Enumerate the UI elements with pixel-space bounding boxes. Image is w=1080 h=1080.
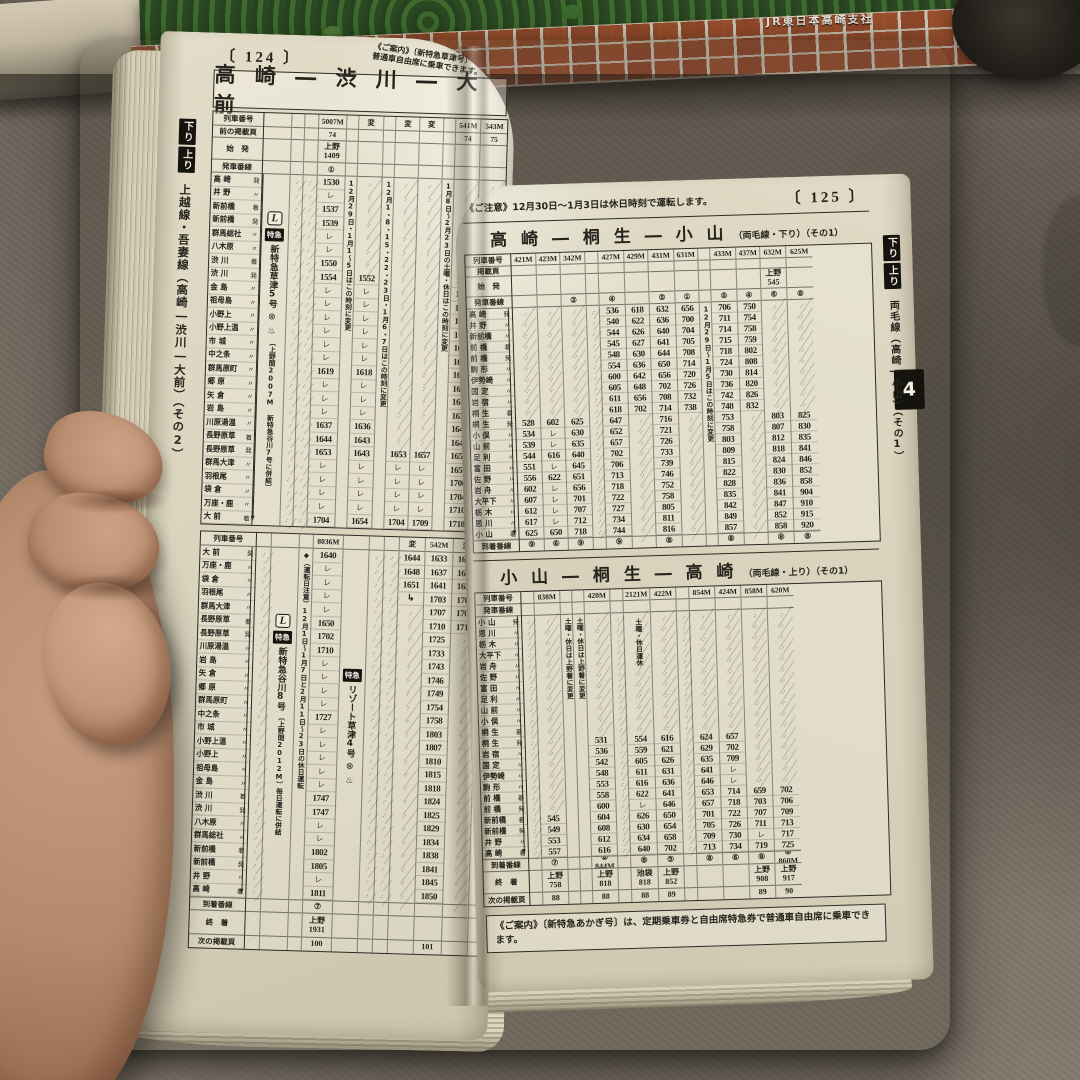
time-cell: 657	[604, 437, 629, 449]
title-main: 小 山 ― 桐 生 ― 高 崎	[500, 557, 738, 589]
row-label: 次の掲載頁	[484, 892, 529, 906]
time-cell: 548	[589, 767, 614, 779]
time-cell: 622	[543, 472, 566, 484]
time-cell: 1651	[398, 578, 423, 592]
time-cell: 1747	[306, 805, 335, 819]
time-cell: 1654	[347, 514, 372, 528]
pass-mark: レ	[309, 459, 336, 473]
pass-mark: レ	[409, 503, 432, 517]
time-cell: 641	[651, 336, 676, 348]
time-cell: 808	[739, 356, 762, 368]
time-cell: 721	[653, 424, 678, 436]
time-cell: 835	[717, 489, 742, 501]
arrival-platform-cell: ⑦	[303, 900, 332, 914]
pass-mark: レ	[307, 751, 336, 765]
time-cell: 1815	[419, 768, 446, 782]
head-cell	[346, 129, 357, 141]
arrival-platform-cell	[568, 857, 579, 869]
up-direction-badge: 上り	[177, 146, 195, 172]
page-ref-cell	[569, 891, 580, 904]
time-cell: 549	[541, 824, 566, 836]
time-cell: 626	[626, 326, 649, 338]
time-cell: 830	[767, 465, 792, 477]
train-number-cell: 625M	[786, 245, 812, 258]
pass-mark: レ	[543, 483, 566, 495]
photo-scene: JR東日本高崎支社 〔 124 〕 《ご案内》〔新特急草津号〕 普通車自由席に乗…	[0, 0, 1080, 1080]
time-cell: 758	[715, 423, 740, 435]
time-cell: 553	[590, 778, 615, 790]
time-cell: 732	[678, 391, 701, 403]
head-cell	[291, 128, 304, 140]
terminal-cell: 上野 917	[775, 862, 802, 885]
time-cell: 1803	[420, 727, 447, 741]
head-cell	[291, 140, 304, 162]
time-cell: 1550	[315, 257, 342, 271]
train-name: リゾート草津4号	[343, 684, 358, 757]
arrival-platform-cell	[415, 903, 442, 917]
pass-mark: レ	[386, 475, 409, 489]
left-page: 〔 124 〕 《ご案内》〔新特急草津号〕 普通車自由席に乗車できます。 高 崎…	[131, 31, 517, 1041]
time-cell: 722	[722, 808, 747, 820]
time-cell: 618	[626, 304, 649, 316]
time-cell: 656	[652, 369, 677, 381]
pass-mark: レ	[348, 474, 373, 488]
time-cell: 622	[626, 315, 649, 327]
pass-mark: レ	[721, 775, 746, 787]
time-cell: 730	[714, 368, 739, 380]
train-number-cell: 変	[359, 116, 384, 131]
time-cell: 717	[774, 828, 800, 840]
time-cell: 718	[721, 797, 746, 809]
departure-platform-cell: ⑤	[649, 291, 674, 304]
time-cell: 709	[774, 806, 800, 818]
train-number-cell: 542M	[426, 538, 453, 553]
limited-express-L-icon: L	[267, 212, 282, 226]
page-ref-cell	[442, 941, 467, 956]
departure-platform-cell	[561, 603, 572, 615]
pass-mark: レ	[313, 338, 340, 352]
head-cell	[537, 275, 561, 296]
time-cell: 734	[723, 841, 748, 853]
time-cell: 622	[629, 788, 655, 800]
pass-mark: レ	[316, 243, 343, 257]
time-cell: 847	[768, 498, 793, 510]
time-cell: 711	[712, 313, 737, 325]
page-ref-cell	[724, 886, 749, 900]
arrival-platform-cell: ⑤	[658, 853, 683, 866]
time-cell: 642	[628, 370, 651, 382]
time-cell: 548	[601, 349, 626, 361]
time-cell: 558	[590, 789, 615, 801]
train-number-cell: 変	[396, 117, 419, 132]
arrival-platform-cell: ⑨	[569, 537, 593, 550]
time-cell: 1643	[349, 447, 374, 461]
time-cell: 650	[544, 527, 567, 539]
page-ref-cell	[332, 937, 357, 952]
terminal-cell	[442, 917, 468, 942]
terminal-cell	[697, 864, 723, 887]
pass-mark: レ	[351, 379, 376, 393]
head-cell	[455, 145, 480, 168]
page-number-right: 〔 125 〕	[785, 185, 867, 208]
time-cell: 634	[630, 832, 656, 844]
time-cell: 1537	[317, 203, 344, 217]
time-cell: 1733	[422, 646, 449, 660]
pass-mark: レ	[317, 189, 344, 203]
time-cell: 736	[714, 379, 739, 391]
time-cell: 600	[602, 371, 627, 383]
pass-mark: レ	[314, 284, 341, 298]
time-cell: 640	[650, 325, 675, 337]
time-cell: 849	[718, 511, 743, 523]
time-cell: 557	[542, 846, 567, 858]
express-badge: 特急	[265, 229, 284, 243]
train-number-cell	[610, 589, 622, 601]
timetable-up: 列車番号大 前発万座・鹿〃袋 倉〃羽根尾〃群馬大津〃長野原草着長野原草発川原湯温…	[188, 530, 496, 957]
train-number-cell	[384, 117, 395, 131]
page-ref-cell: 88	[543, 891, 568, 905]
time-cell: 559	[628, 744, 654, 756]
row-label: 次の掲載頁	[189, 933, 244, 949]
time-cell: 802	[739, 345, 762, 357]
time-cell: 658	[657, 831, 682, 843]
pass-mark: レ	[352, 339, 377, 353]
time-cell: 818	[766, 443, 791, 455]
departure-platform-cell: ①	[318, 163, 345, 177]
train-number-cell: 437M	[736, 247, 759, 260]
time-cell: 1710	[310, 643, 339, 657]
time-cell: 651	[567, 471, 591, 483]
pass-mark: レ	[410, 462, 433, 476]
time-cell: 1637	[310, 419, 337, 433]
train-number-cell: 8036M	[314, 535, 343, 550]
time-cell: 656	[676, 303, 699, 315]
arrival-platform-cell: ⑧	[795, 530, 821, 543]
departure-platform-cell	[573, 602, 584, 614]
time-cell: 708	[652, 391, 677, 403]
time-cell: 1707	[424, 606, 451, 620]
time-cell: 704	[676, 325, 699, 337]
time-cell: 1841	[416, 862, 443, 876]
time-cell: 654	[657, 820, 682, 832]
train-number-cell: 2121M	[623, 588, 649, 601]
time-cell: 726	[722, 819, 747, 831]
time-cell: 630	[630, 821, 656, 833]
time-cell: 703	[747, 796, 772, 808]
pass-mark: レ	[308, 738, 337, 752]
time-cell: 536	[600, 305, 625, 317]
time-cell: 754	[738, 312, 761, 324]
finger-crease	[50, 574, 170, 602]
time-cell: 652	[603, 426, 628, 438]
page-ref-cell	[260, 935, 287, 950]
departure-platform-cell	[625, 292, 648, 305]
time-cell: 1747	[306, 792, 335, 806]
time-cell: 730	[722, 830, 747, 842]
time-cell: 539	[517, 439, 541, 451]
time-cell: 750	[738, 301, 761, 313]
pass-mark: レ	[348, 460, 373, 474]
time-cell: 846	[792, 453, 818, 465]
head-cell	[675, 271, 699, 292]
time-cell: 828	[717, 478, 742, 490]
departure-platform-cell: ④	[599, 293, 624, 306]
time-cell: 612	[591, 833, 616, 845]
head-cell	[396, 131, 419, 144]
time-cell: 707	[748, 807, 773, 819]
pass-mark: レ	[308, 724, 337, 738]
arrival-platform-cell: ⑨	[520, 538, 544, 551]
time-cell: 709	[696, 830, 721, 842]
head-cell: 上野 1409	[318, 141, 345, 164]
time-cell: 725	[775, 839, 801, 851]
head-cell	[263, 139, 290, 162]
time-cell: 752	[655, 479, 680, 491]
pass-mark: レ	[353, 325, 378, 339]
head-cell	[586, 274, 599, 294]
time-cell: 536	[589, 745, 614, 757]
time-cell: 1648	[399, 565, 424, 579]
time-cell: 701	[696, 808, 721, 820]
time-cell: 1727	[308, 711, 337, 725]
terminal-cell	[260, 911, 288, 936]
train-number-cell: 632M	[760, 246, 785, 259]
head-cell	[419, 144, 442, 167]
page-ref-cell	[685, 887, 697, 900]
train-number-cell	[585, 252, 597, 264]
head-cell	[444, 132, 455, 144]
time-cell: 748	[715, 401, 740, 413]
pass-mark: レ	[542, 439, 565, 451]
terminal-cell: 上野 818	[592, 867, 618, 890]
time-cell: 711	[748, 818, 773, 830]
time-cell: 621	[655, 743, 680, 755]
pass-mark: レ	[313, 324, 340, 338]
terminal-cell	[288, 912, 302, 936]
departure-platform-cell	[304, 162, 317, 175]
page-ref-cell: 90	[776, 884, 802, 898]
time-cell: 814	[740, 367, 763, 379]
page-ref-cell: 89	[659, 887, 684, 901]
time-cell: 815	[716, 456, 741, 468]
time-cell: 714	[677, 358, 700, 370]
time-cell: 1850	[415, 889, 442, 903]
time-cell: 713	[697, 841, 722, 853]
head-cell	[358, 142, 383, 165]
time-cell: 835	[792, 431, 818, 443]
train-number-cell: 854M	[689, 586, 714, 599]
train-number-cell: 431M	[648, 249, 673, 262]
train-name: 新特急草津5号	[266, 245, 281, 309]
title-sub: （両毛線・上り）（その1）	[743, 563, 853, 579]
time-cell: 753	[715, 412, 740, 424]
pass-mark: レ	[542, 461, 565, 473]
arrival-platform-cell	[580, 856, 591, 868]
head-cell: 75	[481, 133, 507, 146]
time-cell: 852	[793, 464, 819, 476]
line-name-label: 上越線・吾妻線（高崎―渋川―大前）（その2）	[169, 183, 193, 460]
arrival-platform-cell: ⑦	[542, 857, 567, 870]
time-cell: 904	[793, 486, 819, 498]
time-cell: 706	[604, 459, 629, 471]
terminal-cell	[245, 911, 260, 935]
right-page: 《ご注意》12月30日〜1月3日は休日時刻で運転します。 〔 125 〕 高 崎…	[454, 173, 934, 992]
pass-mark: レ	[544, 505, 567, 517]
pass-mark: レ	[543, 494, 566, 506]
time-cell: 807	[765, 421, 790, 433]
time-cell: 607	[518, 494, 542, 506]
finger-crease	[60, 488, 170, 514]
train-number-cell: 858M	[741, 585, 766, 598]
time-cell: 657	[695, 797, 720, 809]
coupling-note: 〔上野間2007M 新特急谷川7号に併結〕	[263, 340, 275, 491]
pass-mark: レ	[309, 697, 338, 711]
train-number-cell: 541M	[456, 119, 481, 134]
time-cell: 712	[568, 515, 592, 527]
pass-mark: レ	[629, 799, 655, 811]
terminal-cell: 上野 1931	[302, 913, 332, 938]
time-cell: 714	[712, 324, 737, 336]
note-text: 土曜・休日は上野着に変更	[575, 617, 585, 699]
ryomo-up-timetable: 列車番号発車番線小 山発思 川〃栃 木〃大平下〃岩 舟〃佐 野〃富 田〃足 利〃…	[474, 580, 891, 907]
time-cell: 600	[590, 800, 615, 812]
train-number-cell: 427M	[598, 251, 623, 264]
pass-mark: レ	[348, 487, 373, 501]
time-cell: 1644	[310, 432, 337, 446]
pass-mark: レ	[312, 603, 341, 617]
pass-mark: レ	[541, 428, 564, 440]
express-badge: 特急	[343, 668, 362, 682]
page-ref-cell	[698, 886, 723, 900]
pass-mark: レ	[720, 764, 745, 776]
arrival-platform-cell: ⑨	[607, 536, 632, 549]
terminal-cell	[358, 914, 373, 938]
time-cell: 617	[519, 516, 543, 528]
train-number-cell: 620M	[767, 584, 793, 597]
title-sub: （両毛線・下り）（その1）	[733, 225, 843, 241]
pass-mark: レ	[309, 684, 338, 698]
time-cell: 1709	[408, 516, 431, 530]
time-cell: 702	[720, 742, 745, 754]
time-cell: 1834	[417, 835, 444, 849]
time-cell: 716	[653, 413, 678, 425]
time-cell: 722	[605, 492, 630, 504]
arrival-platform-cell: ⑧	[697, 852, 722, 865]
time-cell: 635	[694, 753, 719, 765]
time-cell: 734	[606, 514, 631, 526]
pass-mark: レ	[304, 873, 333, 887]
pass-mark: レ	[544, 516, 567, 528]
page-ref-cell: 101	[414, 940, 441, 955]
time-cell: 636	[650, 314, 675, 326]
departure-platform-cell: ④	[737, 289, 760, 302]
terminal-cell: 上野 852	[658, 865, 684, 888]
train-number-cell: 631M	[674, 249, 697, 262]
time-cell: 758	[655, 490, 680, 502]
time-cell: 713	[774, 817, 800, 829]
time-cell: 811	[656, 512, 681, 524]
time-cell: 705	[696, 819, 721, 831]
head-cell	[346, 141, 358, 163]
head-cell: 74	[455, 133, 480, 146]
terminal-cell: 池袋 818	[631, 866, 658, 889]
time-cell: 604	[591, 811, 616, 823]
time-cell: 718	[568, 526, 592, 538]
arrival-platform-cell: ⑥	[723, 852, 748, 865]
train-number-cell	[344, 536, 369, 551]
pass-mark: レ	[385, 488, 408, 502]
pass-mark: レ	[307, 765, 336, 779]
dark-round-object	[952, 0, 1080, 80]
head-cell	[737, 269, 761, 290]
time-cell: 640	[566, 449, 590, 461]
train-number-cell: 変	[420, 118, 443, 133]
page-ref-cell: 88	[593, 889, 618, 903]
time-cell: 630	[565, 427, 589, 439]
time-cell: 707	[568, 504, 592, 516]
row-label: 終 着	[189, 909, 245, 935]
arrival-platform-cell: ⑥	[545, 538, 568, 551]
time-cell: 1749	[421, 687, 448, 701]
time-cell: 857	[718, 522, 743, 534]
pass-mark: レ	[311, 392, 338, 406]
time-cell: 602	[518, 483, 542, 495]
head-cell	[358, 130, 383, 143]
service-note: 土曜・休日運休	[633, 619, 642, 667]
time-cell: 641	[656, 787, 681, 799]
time-cell: 636	[627, 359, 650, 371]
train-number-cell	[698, 248, 709, 260]
right-margin: 下り 上り 両毛線（高崎―小山）（その1）	[876, 234, 913, 463]
time-cell: 809	[716, 445, 741, 457]
pass-mark: レ	[352, 352, 377, 366]
train-number-cell: 420M	[584, 590, 609, 603]
head-cell	[699, 270, 711, 290]
train-number-cell	[444, 118, 455, 132]
time-cell: 542	[589, 756, 614, 768]
pass-mark: レ	[308, 500, 335, 514]
pass-mark: レ	[306, 778, 335, 792]
time-cell: 824	[766, 454, 791, 466]
time-cell: 702	[652, 380, 677, 392]
time-cell: 1704	[384, 515, 407, 529]
train-number-cell	[306, 114, 319, 128]
time-cell: 746	[655, 468, 680, 480]
time-cell: 1838	[416, 849, 443, 863]
time-cell: 647	[603, 415, 628, 427]
arrival-platform-cell	[261, 898, 288, 912]
departure-platform-cell: ①	[675, 291, 698, 304]
head-cell	[711, 270, 737, 291]
train-number-cell: 422M	[650, 588, 675, 601]
head-cell	[264, 127, 291, 140]
pass-mark: レ	[386, 461, 409, 475]
pass-mark: レ	[748, 829, 773, 841]
time-cell: 1619	[312, 365, 339, 379]
time-cell: 616	[592, 844, 617, 856]
down-direction-badge: 下り	[882, 235, 900, 261]
terminal-cell	[332, 913, 358, 938]
departure-platform-cell	[699, 290, 710, 302]
pass-mark: レ	[309, 473, 336, 487]
pass-mark: レ	[347, 501, 372, 515]
page-ref-cell	[358, 938, 372, 952]
time-cell: 1653	[309, 446, 336, 460]
pass-mark: レ	[311, 405, 338, 419]
pass-mark: レ	[314, 297, 341, 311]
time-cell: 701	[567, 493, 591, 505]
time-cell: 744	[606, 525, 631, 537]
